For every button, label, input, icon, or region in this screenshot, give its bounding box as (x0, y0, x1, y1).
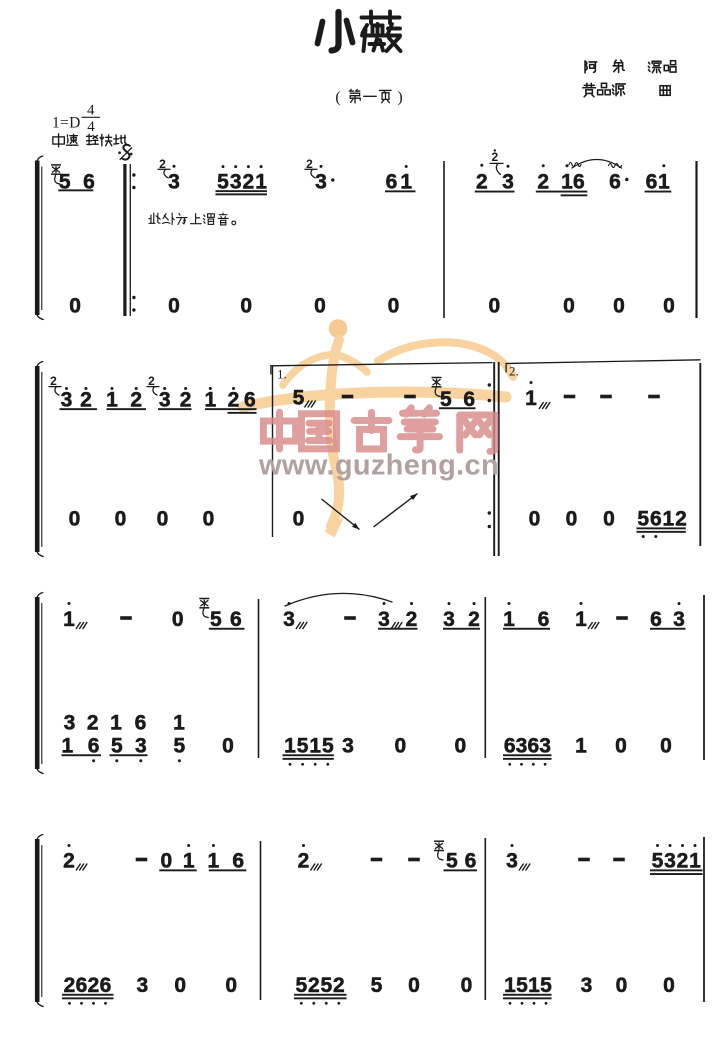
svg-text:0: 0 (115, 508, 127, 531)
svg-text:2: 2 (148, 374, 155, 388)
svg-text:0: 0 (203, 508, 215, 531)
svg-text:2: 2 (80, 389, 92, 412)
svg-text:2: 2 (88, 974, 100, 997)
svg-text:2: 2 (243, 171, 255, 194)
svg-text:0: 0 (615, 734, 627, 757)
svg-text:6: 6 (650, 508, 662, 531)
svg-text:1: 1 (525, 387, 537, 410)
svg-text:3: 3 (159, 389, 171, 412)
svg-text:2: 2 (130, 389, 142, 412)
svg-text:2: 2 (228, 389, 240, 412)
svg-text:0: 0 (314, 295, 326, 318)
svg-text:1: 1 (173, 711, 185, 734)
svg-text:0: 0 (563, 295, 575, 318)
svg-text:0: 0 (222, 734, 234, 757)
svg-text:3: 3 (581, 974, 593, 997)
svg-text:6: 6 (650, 608, 662, 631)
svg-text:2: 2 (308, 974, 320, 997)
svg-text:1: 1 (63, 608, 75, 631)
svg-text:0: 0 (660, 734, 672, 757)
svg-text:0: 0 (529, 508, 541, 531)
svg-text:2: 2 (677, 850, 689, 873)
svg-text:2: 2 (675, 508, 687, 531)
svg-text:6: 6 (573, 171, 585, 194)
svg-text:3: 3 (506, 850, 518, 873)
svg-text:3: 3 (61, 389, 73, 412)
svg-text:4: 4 (87, 119, 95, 135)
svg-text:6: 6 (76, 974, 88, 997)
svg-text:1: 1 (503, 608, 515, 631)
svg-text:5: 5 (320, 974, 332, 997)
svg-text:4: 4 (87, 103, 95, 119)
svg-text:2: 2 (406, 608, 418, 631)
svg-text:2: 2 (537, 171, 549, 194)
svg-text:5: 5 (516, 974, 528, 997)
svg-text:5: 5 (174, 734, 186, 757)
svg-text:3: 3 (516, 734, 528, 757)
svg-text:0: 0 (157, 508, 169, 531)
svg-text:5: 5 (652, 850, 664, 873)
svg-text:0: 0 (225, 974, 237, 997)
svg-text:1: 1 (62, 734, 74, 757)
svg-text:0: 0 (566, 508, 578, 531)
svg-text:5: 5 (217, 171, 229, 194)
svg-text:1: 1 (183, 850, 195, 873)
svg-text:0: 0 (616, 974, 628, 997)
svg-text:6: 6 (527, 734, 539, 757)
svg-text:1: 1 (284, 734, 296, 757)
svg-text:3: 3 (168, 171, 180, 194)
svg-text:3: 3 (443, 608, 455, 631)
svg-text:1: 1 (204, 389, 216, 412)
svg-text:6: 6 (88, 734, 100, 757)
svg-text:3: 3 (342, 734, 354, 757)
svg-text:5: 5 (446, 850, 458, 873)
svg-text:1: 1 (208, 850, 220, 873)
svg-text:0: 0 (489, 295, 501, 318)
svg-text:1: 1 (658, 171, 670, 194)
svg-text:2: 2 (180, 389, 192, 412)
svg-text:5: 5 (293, 387, 305, 410)
svg-text:0: 0 (461, 974, 473, 997)
svg-text:6: 6 (646, 171, 658, 194)
svg-text:0: 0 (603, 508, 615, 531)
svg-text:1: 1 (689, 850, 701, 873)
svg-text:1: 1 (528, 974, 540, 997)
svg-text:3: 3 (230, 171, 242, 194)
svg-text:1: 1 (309, 734, 321, 757)
svg-text:5: 5 (111, 734, 123, 757)
svg-text:6: 6 (230, 608, 242, 631)
svg-text:3: 3 (673, 608, 685, 631)
svg-text:3: 3 (135, 734, 147, 757)
svg-text:2: 2 (298, 850, 310, 873)
svg-text:6: 6 (135, 711, 147, 734)
svg-text:0: 0 (613, 295, 625, 318)
svg-text:2: 2 (476, 171, 488, 194)
svg-text:(: ( (335, 89, 340, 106)
svg-text:3: 3 (539, 734, 551, 757)
svg-text:1: 1 (110, 711, 122, 734)
svg-text:5: 5 (637, 508, 649, 531)
svg-text:1.: 1. (277, 367, 287, 382)
svg-text:0: 0 (160, 850, 172, 873)
svg-text:3: 3 (136, 974, 148, 997)
svg-text:3: 3 (283, 608, 295, 631)
svg-text:0: 0 (388, 295, 400, 318)
svg-text:5: 5 (297, 734, 309, 757)
svg-text:1: 1 (663, 508, 675, 531)
svg-text:6: 6 (386, 171, 398, 194)
svg-text:6: 6 (232, 850, 244, 873)
svg-text:3: 3 (378, 608, 390, 631)
svg-text:0: 0 (663, 295, 675, 318)
svg-text:6: 6 (504, 734, 516, 757)
svg-text:5: 5 (295, 974, 307, 997)
svg-text:0: 0 (69, 508, 81, 531)
svg-text:5: 5 (210, 608, 222, 631)
svg-text:www.guzheng.cn: www.guzheng.cn (258, 450, 499, 482)
svg-text:2: 2 (333, 974, 345, 997)
svg-text:5: 5 (371, 974, 383, 997)
svg-text:1: 1 (561, 171, 573, 194)
svg-text:2: 2 (468, 608, 480, 631)
svg-text:): ) (397, 89, 402, 106)
svg-text:3: 3 (315, 171, 327, 194)
svg-text:6: 6 (538, 608, 550, 631)
svg-text:0: 0 (69, 295, 81, 318)
svg-text:0: 0 (293, 508, 305, 531)
svg-text:1: 1 (575, 734, 587, 757)
svg-text:6: 6 (100, 974, 112, 997)
svg-text:2: 2 (50, 374, 57, 388)
svg-text:1: 1 (400, 171, 412, 194)
svg-text:0: 0 (408, 974, 420, 997)
svg-text:2: 2 (64, 974, 76, 997)
svg-text:0: 0 (454, 734, 466, 757)
svg-text:0: 0 (240, 295, 252, 318)
svg-text:0: 0 (174, 974, 186, 997)
svg-text:5: 5 (322, 734, 334, 757)
svg-text:2: 2 (87, 711, 99, 734)
svg-text:3: 3 (664, 850, 676, 873)
svg-text:6: 6 (465, 850, 477, 873)
svg-text:0: 0 (172, 608, 184, 631)
svg-text:2: 2 (491, 150, 498, 164)
svg-text:1: 1 (504, 974, 516, 997)
svg-text:2: 2 (63, 850, 75, 873)
svg-text:5: 5 (540, 974, 552, 997)
svg-text:0: 0 (394, 734, 406, 757)
svg-text:6: 6 (244, 389, 256, 412)
svg-text:1=D: 1=D (52, 115, 81, 132)
svg-text:0: 0 (663, 974, 675, 997)
svg-text:3: 3 (502, 171, 514, 194)
svg-text:1: 1 (106, 389, 118, 412)
svg-text:2.: 2. (509, 364, 519, 379)
svg-text:1: 1 (575, 608, 587, 631)
svg-text:0: 0 (168, 295, 180, 318)
svg-text:1: 1 (255, 171, 267, 194)
svg-text:6: 6 (609, 171, 621, 194)
svg-text:3: 3 (64, 711, 76, 734)
